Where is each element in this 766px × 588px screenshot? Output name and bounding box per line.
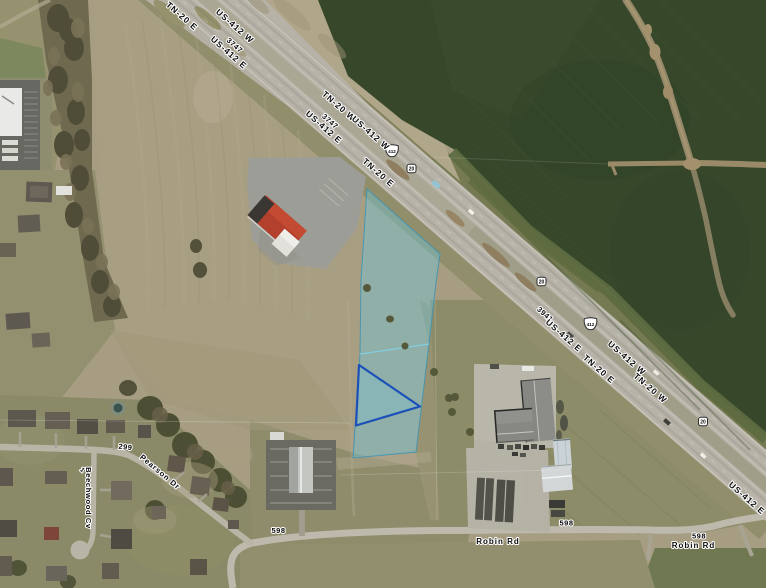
svg-text:20: 20 (539, 280, 545, 286)
svg-text:598: 598 (271, 526, 285, 535)
svg-text:412: 412 (587, 322, 595, 327)
svg-text:299: 299 (118, 442, 133, 452)
svg-text:598: 598 (692, 532, 706, 541)
svg-text:598: 598 (559, 519, 573, 528)
svg-text:20: 20 (700, 420, 706, 426)
svg-text:20: 20 (409, 167, 415, 173)
svg-text:412: 412 (388, 149, 396, 154)
svg-text:Robin Rd: Robin Rd (476, 537, 520, 546)
svg-text:Beechwood Cv: Beechwood Cv (84, 467, 93, 529)
svg-text:Robin Rd: Robin Rd (672, 541, 716, 550)
